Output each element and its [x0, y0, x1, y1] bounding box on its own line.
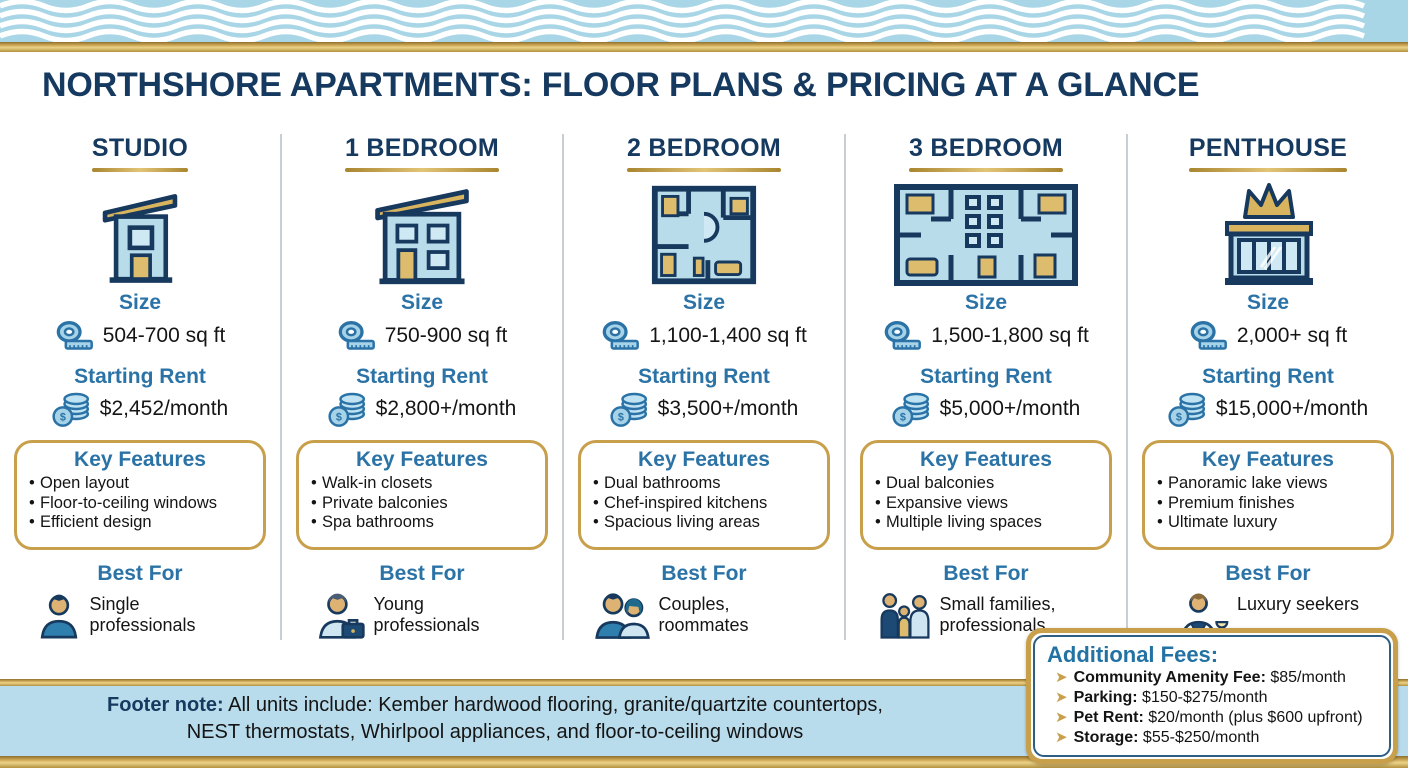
- gold-underline: [345, 168, 499, 172]
- unit-type-title: 3 BEDROOM: [909, 134, 1063, 163]
- size-value: 1,100-1,400 sq ft: [649, 324, 807, 348]
- rent-value: $15,000+/month: [1216, 397, 1368, 421]
- page-title: NORTHSHORE APARTMENTS: FLOOR PLANS & PRI…: [42, 66, 1372, 105]
- footer-note-line2: NEST thermostats, Whirlpool appliances, …: [20, 719, 970, 746]
- feature-item: Dual balconies: [873, 474, 1099, 493]
- key-features-box: Key Features Panoramic lake views Premiu…: [1142, 440, 1394, 550]
- key-features-title: Key Features: [591, 448, 817, 472]
- column-header: 1 BEDROOM: [345, 134, 499, 178]
- key-features-list: Open layout Floor-to-ceiling windows Eff…: [27, 474, 253, 532]
- best-for-row: Couples, roommates: [564, 590, 844, 640]
- coin-stack-icon: $: [892, 390, 932, 428]
- studio-building-icon: [94, 178, 186, 291]
- fee-item: Community Amenity Fee: $85/month: [1047, 668, 1379, 688]
- rent-row: $ $5,000+/month: [892, 392, 1081, 426]
- column-header: PENTHOUSE: [1189, 134, 1347, 178]
- column-3-bedroom: 3 BEDROOM Size: [844, 134, 1126, 640]
- wave-pattern-band: [0, 0, 1408, 42]
- feature-item: Multiple living spaces: [873, 513, 1099, 532]
- size-row: 1,100-1,400 sq ft: [601, 319, 807, 353]
- key-features-box: Key Features Dual balconies Expansive vi…: [860, 440, 1112, 550]
- couple-icon: [595, 590, 651, 640]
- footer-note-line1: Footer note: All units include: Kember h…: [20, 692, 970, 719]
- feature-item: Dual bathrooms: [591, 474, 817, 493]
- rent-label: Starting Rent: [1202, 365, 1334, 393]
- key-features-title: Key Features: [873, 448, 1099, 472]
- size-row: 2,000+ sq ft: [1189, 319, 1347, 353]
- rent-value: $2,452/month: [100, 397, 228, 421]
- svg-text:$: $: [60, 412, 66, 424]
- penthouse-crown-icon: [1205, 178, 1331, 291]
- rent-label: Starting Rent: [920, 365, 1052, 393]
- feature-item: Spa bathrooms: [309, 513, 535, 532]
- rent-row: $ $3,500+/month: [610, 392, 799, 426]
- feature-item: Private balconies: [309, 494, 535, 513]
- unit-type-title: STUDIO: [92, 134, 188, 163]
- column-header: 2 BEDROOM: [627, 134, 781, 178]
- key-features-box: Key Features Dual bathrooms Chef-inspire…: [578, 440, 830, 550]
- fee-item: Parking: $150-$275/month: [1047, 688, 1379, 708]
- feature-item: Walk-in closets: [309, 474, 535, 493]
- gold-underline: [627, 168, 781, 172]
- rent-label: Starting Rent: [638, 365, 770, 393]
- best-for-label: Best For: [379, 562, 464, 590]
- column-header: STUDIO: [92, 134, 188, 178]
- svg-text:$: $: [617, 412, 623, 424]
- size-row: 504-700 sq ft: [55, 319, 226, 353]
- rent-value: $3,500+/month: [658, 397, 799, 421]
- rent-row: $ $2,452/month: [52, 392, 228, 426]
- tape-measure-icon: [883, 319, 923, 353]
- best-for-label: Best For: [943, 562, 1028, 590]
- fee-item: Storage: $55-$250/month: [1047, 728, 1379, 748]
- size-label: Size: [1247, 291, 1289, 319]
- unit-columns: STUDIO Size 504-700 sq ft Starting Rent: [0, 134, 1408, 640]
- feature-item: Open layout: [27, 474, 253, 493]
- one-bedroom-building-icon: [370, 178, 474, 291]
- key-features-list: Dual bathrooms Chef-inspired kitchens Sp…: [591, 474, 817, 532]
- size-row: 1,500-1,800 sq ft: [883, 319, 1089, 353]
- svg-text:$: $: [899, 412, 905, 424]
- unit-type-title: 1 BEDROOM: [345, 134, 499, 163]
- size-value: 504-700 sq ft: [103, 324, 226, 348]
- best-for-text: Luxury seekers: [1237, 590, 1359, 615]
- coin-stack-icon: $: [52, 390, 92, 428]
- svg-text:$: $: [335, 412, 341, 424]
- key-features-box: Key Features Walk-in closets Private bal…: [296, 440, 548, 550]
- two-bedroom-floorplan-icon: [650, 178, 758, 291]
- key-features-list: Panoramic lake views Premium finishes Ul…: [1155, 474, 1381, 532]
- size-value: 1,500-1,800 sq ft: [931, 324, 1089, 348]
- size-row: 750-900 sq ft: [337, 319, 508, 353]
- size-label: Size: [683, 291, 725, 319]
- gold-underline: [92, 168, 188, 172]
- tape-measure-icon: [1189, 319, 1229, 353]
- svg-text:$: $: [1176, 412, 1182, 424]
- size-value: 2,000+ sq ft: [1237, 324, 1347, 348]
- feature-item: Premium finishes: [1155, 494, 1381, 513]
- feature-item: Ultimate luxury: [1155, 513, 1381, 532]
- size-label: Size: [119, 291, 161, 319]
- best-for-row: Young professionals: [282, 590, 562, 640]
- tape-measure-icon: [337, 319, 377, 353]
- coin-stack-icon: $: [328, 390, 368, 428]
- rent-value: $2,800+/month: [376, 397, 517, 421]
- coin-stack-icon: $: [1168, 390, 1208, 428]
- key-features-title: Key Features: [27, 448, 253, 472]
- best-for-text: Young professionals: [374, 590, 529, 635]
- gold-underline: [1189, 168, 1347, 172]
- coin-stack-icon: $: [610, 390, 650, 428]
- single-person-icon: [36, 590, 82, 640]
- arrow-bullet-icon: [1055, 728, 1068, 748]
- column-1-bedroom: 1 BEDROOM Size 750-900 sq ft: [280, 134, 562, 640]
- size-value: 750-900 sq ft: [385, 324, 508, 348]
- footer-note: Footer note: All units include: Kember h…: [20, 692, 970, 746]
- briefcase-person-icon: [316, 590, 366, 640]
- size-label: Size: [965, 291, 1007, 319]
- tape-measure-icon: [601, 319, 641, 353]
- fee-item: Pet Rent: $20/month (plus $600 upfront): [1047, 708, 1379, 728]
- additional-fees-title: Additional Fees:: [1047, 642, 1379, 668]
- column-penthouse: PENTHOUSE Size 2,000+ sq ft: [1126, 134, 1408, 640]
- key-features-list: Dual balconies Expansive views Multiple …: [873, 474, 1099, 532]
- additional-fees-inner: Additional Fees: Community Amenity Fee: …: [1033, 635, 1391, 757]
- top-gold-divider: [0, 42, 1408, 52]
- feature-item: Efficient design: [27, 513, 253, 532]
- key-features-list: Walk-in closets Private balconies Spa ba…: [309, 474, 535, 532]
- additional-fees-box: Additional Fees: Community Amenity Fee: …: [1026, 628, 1398, 764]
- unit-type-title: PENTHOUSE: [1189, 134, 1347, 163]
- arrow-bullet-icon: [1055, 708, 1068, 728]
- best-for-text: Single professionals: [90, 590, 245, 635]
- family-icon: [878, 590, 932, 640]
- rent-label: Starting Rent: [74, 365, 206, 393]
- feature-item: Floor-to-ceiling windows: [27, 494, 253, 513]
- key-features-title: Key Features: [309, 448, 535, 472]
- feature-item: Panoramic lake views: [1155, 474, 1381, 493]
- three-bedroom-floorplan-icon: [893, 178, 1079, 291]
- rent-row: $ $2,800+/month: [328, 392, 517, 426]
- column-header: 3 BEDROOM: [909, 134, 1063, 178]
- rent-label: Starting Rent: [356, 365, 488, 393]
- unit-type-title: 2 BEDROOM: [627, 134, 781, 163]
- best-for-text: Couples, roommates: [659, 590, 814, 635]
- arrow-bullet-icon: [1055, 688, 1068, 708]
- best-for-label: Best For: [661, 562, 746, 590]
- best-for-row: Single professionals: [0, 590, 280, 640]
- rent-row: $ $15,000+/month: [1168, 392, 1368, 426]
- rent-value: $5,000+/month: [940, 397, 1081, 421]
- column-studio: STUDIO Size 504-700 sq ft Starting Rent: [0, 134, 280, 640]
- footer-note-label: Footer note:: [107, 694, 224, 716]
- key-features-title: Key Features: [1155, 448, 1381, 472]
- tape-measure-icon: [55, 319, 95, 353]
- arrow-bullet-icon: [1055, 668, 1068, 688]
- feature-item: Spacious living areas: [591, 513, 817, 532]
- column-2-bedroom: 2 BEDROOM Size 1,100-1,400: [562, 134, 844, 640]
- best-for-label: Best For: [1225, 562, 1310, 590]
- feature-item: Chef-inspired kitchens: [591, 494, 817, 513]
- gold-underline: [909, 168, 1063, 172]
- size-label: Size: [401, 291, 443, 319]
- key-features-box: Key Features Open layout Floor-to-ceilin…: [14, 440, 266, 550]
- best-for-label: Best For: [97, 562, 182, 590]
- feature-item: Expansive views: [873, 494, 1099, 513]
